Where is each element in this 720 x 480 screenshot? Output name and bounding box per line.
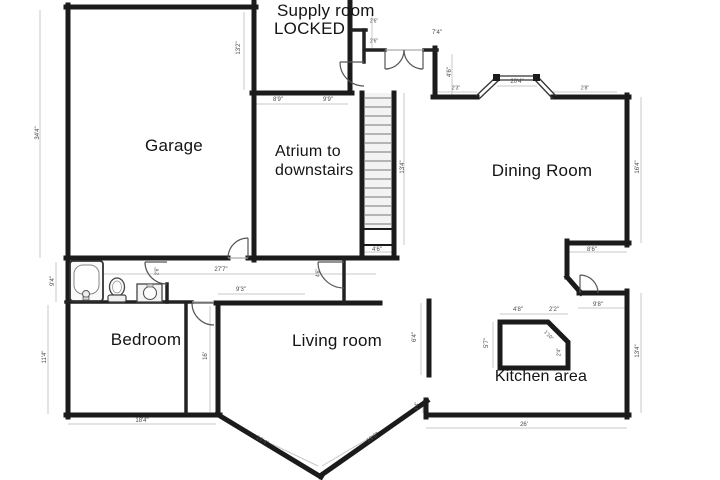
dimension-label: 13'4" bbox=[635, 344, 641, 357]
dimension-label: 9'8" bbox=[593, 302, 603, 308]
room-label: Garage bbox=[145, 136, 203, 156]
bathtub bbox=[70, 261, 103, 301]
dimension-label: 20'4" bbox=[510, 79, 523, 85]
staircase bbox=[362, 93, 394, 245]
room-label: Bedroom bbox=[111, 330, 181, 350]
floorplan-canvas bbox=[0, 0, 720, 480]
room-label: LOCKED bbox=[274, 19, 345, 39]
dimension-label: 13'2" bbox=[236, 41, 242, 54]
dimension-label: 4'6" bbox=[317, 269, 322, 277]
dimension-label: 4'6" bbox=[447, 67, 453, 77]
dimension-label: 6'4" bbox=[412, 332, 418, 342]
kitchen-island bbox=[500, 322, 568, 368]
dimension-label: 2'3" bbox=[452, 87, 460, 92]
dimension-label: 16' bbox=[203, 352, 209, 360]
dimension-label: 4'6" bbox=[372, 247, 382, 253]
dimension-label: 2'6" bbox=[156, 267, 161, 275]
dimension-label: 2'2" bbox=[549, 307, 559, 313]
dimension-label: 2'8" bbox=[581, 87, 589, 92]
room-label: Dining Room bbox=[492, 161, 592, 181]
french-doors bbox=[385, 50, 424, 69]
dimension-label: 9'3" bbox=[236, 287, 246, 293]
dimension-label: 18'4" bbox=[135, 418, 148, 424]
dimension-label: 4'4" bbox=[416, 402, 421, 410]
dimension-label: 8'9" bbox=[273, 97, 283, 103]
dimension-label: 5'7" bbox=[484, 338, 490, 348]
room-label: Kitchen area bbox=[495, 368, 587, 386]
dimension-label: 16'4" bbox=[635, 160, 641, 173]
dimension-label: 7'4" bbox=[432, 30, 442, 36]
room-label: downstairs bbox=[275, 162, 353, 180]
dimension-label: 9'9" bbox=[323, 97, 333, 103]
dimension-label: 11'4" bbox=[42, 351, 48, 364]
dimension-label: 27'7" bbox=[214, 267, 227, 273]
dimension-label: 2'6" bbox=[370, 40, 378, 45]
toilet bbox=[108, 278, 126, 302]
dimension-label: 8'6" bbox=[587, 247, 597, 253]
dimension-label: 34'4" bbox=[35, 126, 41, 139]
dimension-label: 2'4" bbox=[558, 348, 563, 356]
dimension-label: 9'4" bbox=[50, 276, 56, 286]
dimension-label: 4'8" bbox=[513, 307, 523, 313]
room-label: Living room bbox=[292, 331, 382, 351]
dimension-label: 13'4" bbox=[400, 160, 406, 173]
dimension-label: 2'6" bbox=[370, 20, 378, 25]
sink-vanity bbox=[137, 284, 162, 302]
walls bbox=[66, 0, 629, 477]
dimension-label: 26' bbox=[520, 422, 528, 428]
room-label: Supply room bbox=[277, 1, 375, 21]
room-label: Atrium to bbox=[275, 143, 341, 161]
floorplan-page: Supply roomLOCKEDGarageAtrium todownstai… bbox=[0, 0, 720, 480]
dimension-lines bbox=[40, 10, 641, 466]
